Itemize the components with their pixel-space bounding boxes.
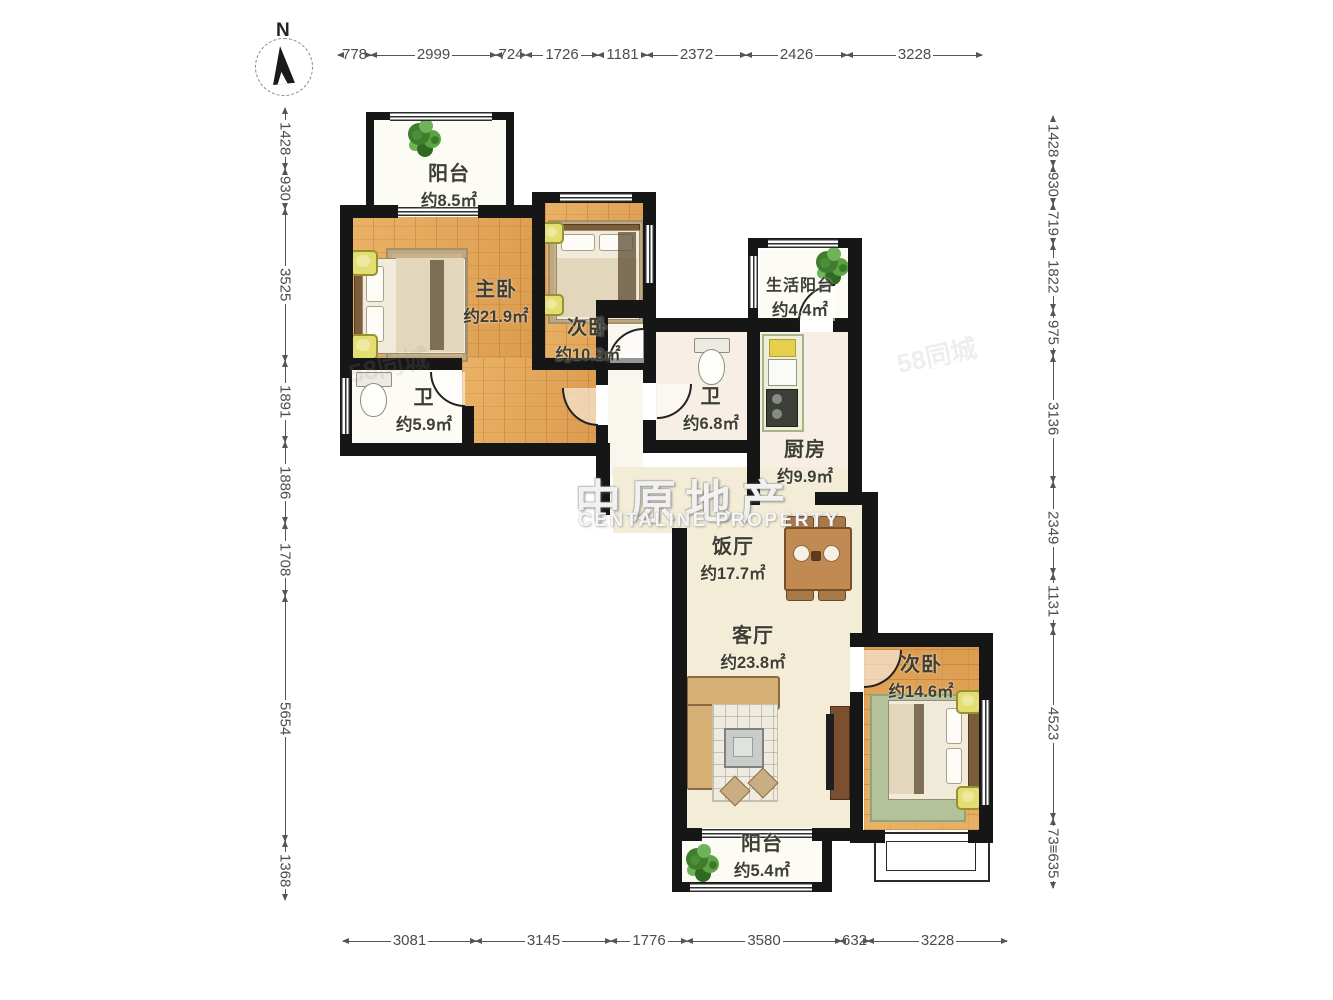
dimension-label: 5654 — [272, 596, 298, 841]
dimension-label: 1726 — [526, 44, 598, 66]
dimension-label: 4523 — [1040, 629, 1066, 819]
dimension-label: 1708 — [272, 523, 298, 596]
wall-segment — [862, 492, 878, 647]
window — [645, 225, 654, 283]
toilet-icon — [694, 338, 728, 386]
floor-plan-canvas: N 778 2999 724 1726 1181 2372 2426 3228 … — [0, 0, 1333, 1000]
pillow-icon — [946, 748, 962, 784]
dimension-label: 2426 — [746, 44, 847, 66]
wall-segment — [340, 443, 610, 456]
dimension-row-bottom: 3081 3145 1776 3580 632 3228 — [343, 930, 1009, 952]
room-label-service-balcony: 生活阳台约4.4㎡ — [766, 272, 834, 321]
wall-segment — [822, 838, 832, 892]
dimension-label: 1368 — [272, 841, 298, 900]
coffee-table-inner-icon — [733, 737, 753, 757]
wall-segment — [833, 318, 848, 332]
wall-segment — [968, 830, 993, 843]
wall-segment — [643, 318, 760, 332]
window — [768, 239, 838, 248]
wall-segment — [596, 425, 608, 450]
wall-segment — [532, 192, 545, 358]
wall-segment — [643, 440, 760, 453]
dimension-label: 1131 — [1040, 574, 1066, 629]
nightstand-icon — [350, 250, 378, 276]
dimension-label: 1776 — [611, 930, 687, 952]
dimension-label: 724 — [496, 44, 526, 66]
room-label-balcony-bottom: 阳台约5.4㎡ — [734, 827, 790, 881]
wall-segment — [506, 112, 514, 217]
plant-icon — [684, 845, 720, 881]
wall-segment — [848, 238, 862, 505]
wall-segment — [850, 633, 993, 647]
stove-icon — [766, 389, 798, 427]
burner-icon — [772, 409, 782, 419]
dimension-label: 1428 — [272, 108, 298, 169]
window — [981, 700, 990, 805]
dimension-label: 2999 — [371, 44, 496, 66]
room-label-bedroom3: 次卧约14.6㎡ — [888, 648, 953, 702]
watermark-faint: 58同城 — [893, 328, 980, 381]
dimension-label: 1428 — [1040, 116, 1066, 166]
plate-icon — [823, 545, 840, 562]
dimension-label: 975 — [1040, 310, 1066, 356]
dimension-label: 3081 — [343, 930, 476, 952]
watermark-brand-en: CENTALINE PROPERTY — [578, 510, 840, 532]
plate-icon — [793, 545, 810, 562]
wall-segment — [672, 528, 687, 840]
dimension-column-right: 1428 930 719 1822 975 3136 2349 1131 452… — [1040, 116, 1066, 888]
dimension-column-left: 1428 930 3525 1891 1886 1708 5654 1368 — [272, 108, 298, 900]
window — [749, 256, 758, 308]
dimension-label: 1891 — [272, 361, 298, 442]
dimension-label: 1822 — [1040, 244, 1066, 310]
sink-icon — [768, 359, 797, 386]
dimension-row-top: 778 2999 724 1726 1181 2372 2426 3228 — [338, 44, 986, 66]
window — [690, 883, 812, 892]
dimension-label: 3580 — [687, 930, 841, 952]
blanket-fold-icon — [430, 260, 444, 350]
dimension-label: 3228 — [868, 930, 1007, 952]
room-label-bedroom2: 次卧约10.2㎡ — [555, 311, 620, 365]
dimension-label: 3145 — [476, 930, 611, 952]
wall-segment — [643, 332, 656, 383]
dimension-label: 632 — [841, 930, 868, 952]
dimension-label: 3525 — [272, 209, 298, 361]
dimension-label: 73≡635 — [1040, 819, 1066, 888]
plant-icon — [406, 120, 442, 156]
window — [560, 193, 632, 202]
room-label-bathroom2: 卫约6.8㎡ — [683, 380, 739, 434]
wall-segment — [340, 205, 353, 370]
room-label-living-room: 客厅约23.8㎡ — [720, 619, 785, 673]
dimension-label: 719 — [1040, 204, 1066, 244]
wall-segment — [812, 828, 862, 841]
window — [341, 378, 350, 434]
dimension-label: 2372 — [647, 44, 746, 66]
room-label-balcony-top: 阳台约8.5㎡ — [421, 157, 477, 211]
wall-segment — [366, 112, 374, 217]
pillow-icon — [561, 234, 595, 251]
dimension-label: 778 — [338, 44, 371, 66]
room-label-dining-room: 饭厅约17.7㎡ — [700, 530, 765, 584]
room-label-master-bedroom: 主卧约21.9㎡ — [463, 273, 528, 327]
table-center-icon — [811, 551, 821, 561]
window — [390, 112, 492, 121]
tv-icon — [826, 714, 834, 790]
dimension-label: 930 — [272, 169, 298, 209]
compass-arrow-notch — [276, 72, 287, 85]
cutting-board-icon — [769, 339, 796, 357]
bay-window-frame — [886, 841, 976, 871]
dimension-label: 1181 — [598, 44, 647, 66]
dimension-label: 3228 — [847, 44, 982, 66]
dimension-label: 930 — [1040, 166, 1066, 204]
burner-icon — [772, 394, 782, 404]
dimension-label: 1886 — [272, 442, 298, 523]
blanket-fold-icon — [914, 704, 924, 794]
dimension-label: 2349 — [1040, 482, 1066, 574]
room-label-bathroom1: 卫约5.9㎡ — [396, 381, 452, 435]
dimension-label: 3136 — [1040, 356, 1066, 482]
wall-segment — [462, 406, 474, 446]
wall-segment — [850, 692, 863, 843]
